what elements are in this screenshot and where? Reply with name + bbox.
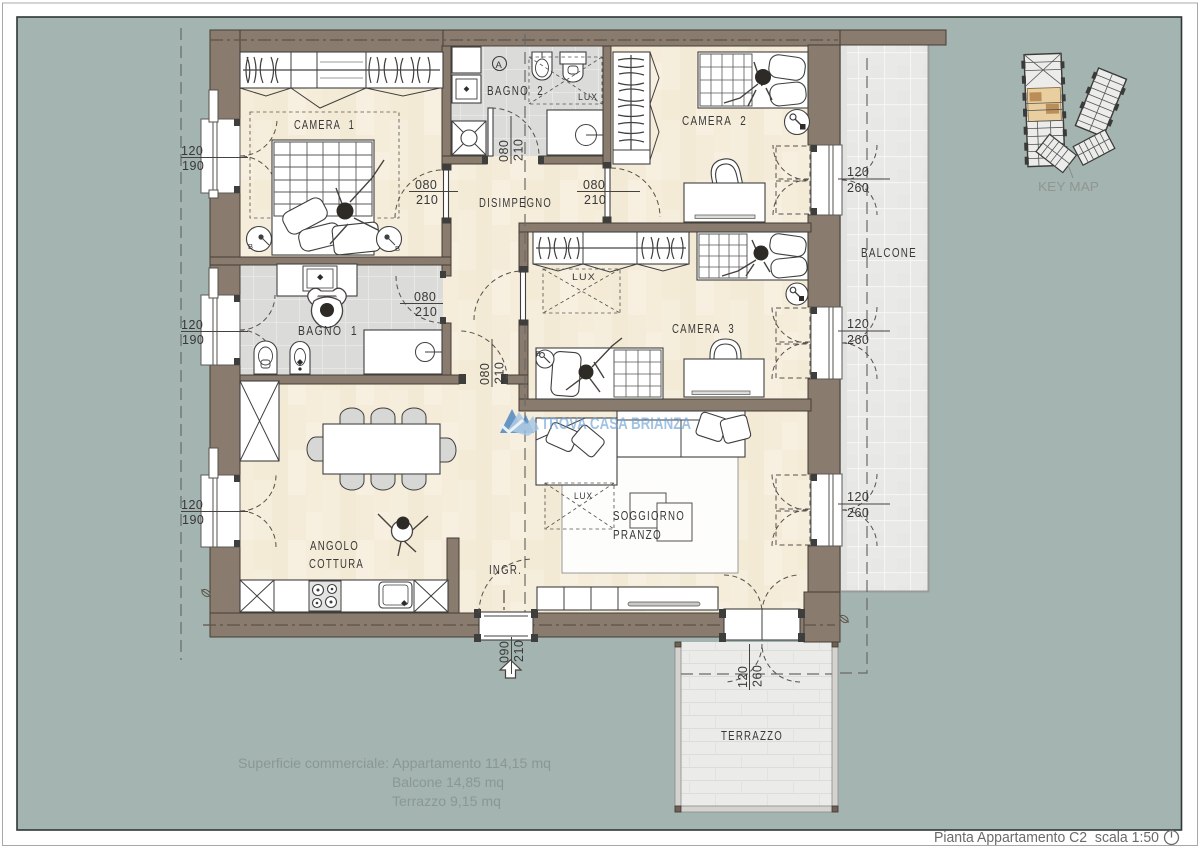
svg-text:B: B xyxy=(395,244,400,253)
svg-text:210: 210 xyxy=(416,193,438,207)
svg-text:080: 080 xyxy=(583,178,605,192)
svg-text:210: 210 xyxy=(415,305,437,319)
svg-text:210: 210 xyxy=(512,139,526,161)
svg-text:080: 080 xyxy=(497,140,511,162)
svg-text:080: 080 xyxy=(415,178,437,192)
svg-text:190: 190 xyxy=(182,159,204,173)
svg-text:SOGGIORNO: SOGGIORNO xyxy=(613,509,685,523)
svg-text:210: 210 xyxy=(512,640,526,662)
svg-text:120: 120 xyxy=(736,666,750,688)
svg-text:B: B xyxy=(536,351,541,358)
svg-text:KEY MAP: KEY MAP xyxy=(1038,180,1099,194)
svg-text:120: 120 xyxy=(847,165,869,179)
svg-text:120: 120 xyxy=(181,144,203,158)
svg-text:PRANZO: PRANZO xyxy=(613,528,662,542)
svg-text:ANGOLO: ANGOLO xyxy=(310,539,359,553)
svg-text:120: 120 xyxy=(847,490,869,504)
svg-text:120: 120 xyxy=(181,498,203,512)
svg-text:190: 190 xyxy=(182,333,204,347)
svg-text:260: 260 xyxy=(847,333,869,347)
svg-text:120: 120 xyxy=(181,318,203,332)
svg-text:Superficie commerciale: Appart: Superficie commerciale: Appartamento 114… xyxy=(238,755,551,771)
svg-text:BAGNO 2: BAGNO 2 xyxy=(487,84,544,98)
svg-text:210: 210 xyxy=(584,193,606,207)
svg-text:260: 260 xyxy=(847,181,869,195)
svg-text:TROVA CASA BRIANZA: TROVA CASA BRIANZA xyxy=(541,414,691,433)
svg-text:260: 260 xyxy=(847,506,869,520)
svg-text:Pianta Appartamento C2 scala: Pianta Appartamento C2 scala 1:50 xyxy=(934,830,1159,846)
svg-text:TERRAZZO: TERRAZZO xyxy=(721,729,783,743)
svg-text:BALCONE: BALCONE xyxy=(861,246,917,260)
svg-text:090: 090 xyxy=(498,641,512,663)
svg-text:LUX: LUX xyxy=(578,92,598,102)
svg-text:Balcone 14,85 mq: Balcone 14,85 mq xyxy=(392,774,504,790)
svg-text:CAMERA 2: CAMERA 2 xyxy=(682,114,747,128)
svg-text:COTTURA: COTTURA xyxy=(309,557,364,571)
svg-text:080: 080 xyxy=(478,363,492,385)
svg-text:LUX: LUX xyxy=(572,272,596,282)
svg-text:B: B xyxy=(248,242,253,251)
svg-text:Terrazzo 9,15 mq: Terrazzo 9,15 mq xyxy=(392,793,501,809)
svg-text:210: 210 xyxy=(493,362,507,384)
svg-text:BAGNO 1: BAGNO 1 xyxy=(298,324,358,338)
svg-text:190: 190 xyxy=(182,513,204,527)
svg-text:CAMERA 3: CAMERA 3 xyxy=(672,322,735,336)
svg-text:DISIMPEGNO: DISIMPEGNO xyxy=(479,196,552,210)
svg-text:080: 080 xyxy=(414,290,436,304)
svg-text:LUX: LUX xyxy=(574,491,593,501)
svg-text:A: A xyxy=(496,60,503,71)
svg-text:INGR.: INGR. xyxy=(489,563,522,577)
svg-text:260: 260 xyxy=(751,665,765,687)
svg-text:CAMERA 1: CAMERA 1 xyxy=(294,118,355,132)
svg-text:120: 120 xyxy=(847,317,869,331)
